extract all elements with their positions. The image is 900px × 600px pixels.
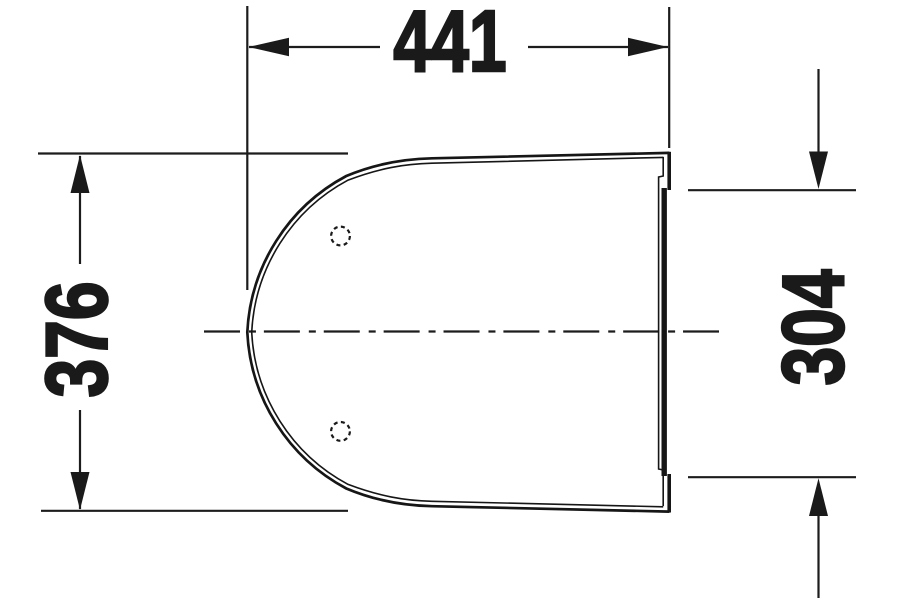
svg-text:376: 376 <box>28 281 125 397</box>
svg-text:304: 304 <box>765 269 862 385</box>
svg-text:441: 441 <box>393 0 506 90</box>
